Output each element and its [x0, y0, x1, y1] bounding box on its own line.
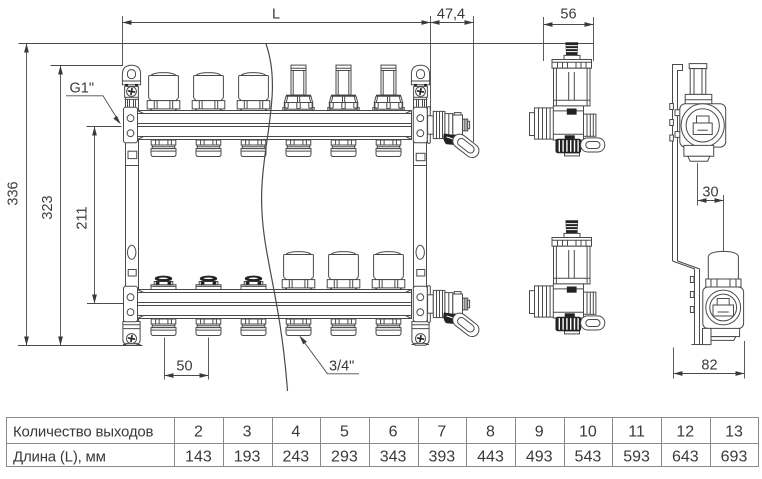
svg-text:393: 393	[428, 449, 455, 466]
svg-text:293: 293	[331, 449, 358, 466]
svg-text:L: L	[272, 7, 280, 23]
svg-text:11: 11	[628, 424, 645, 441]
svg-text:5: 5	[340, 424, 349, 441]
svg-text:12: 12	[676, 424, 694, 441]
svg-text:443: 443	[477, 449, 504, 466]
svg-text:336: 336	[6, 181, 22, 205]
svg-text:693: 693	[721, 449, 748, 466]
svg-text:30: 30	[702, 185, 718, 201]
svg-text:143: 143	[185, 449, 212, 466]
svg-text:10: 10	[579, 424, 597, 441]
svg-text:82: 82	[701, 358, 717, 374]
svg-text:13: 13	[725, 424, 743, 441]
svg-text:343: 343	[380, 449, 407, 466]
svg-text:593: 593	[623, 449, 650, 466]
svg-text:193: 193	[234, 449, 261, 466]
svg-text:2: 2	[194, 424, 203, 441]
svg-text:323: 323	[40, 195, 56, 219]
svg-text:211: 211	[75, 206, 91, 229]
svg-text:50: 50	[176, 359, 192, 375]
svg-text:6: 6	[389, 424, 398, 441]
svg-text:Количество выходов: Количество выходов	[13, 424, 154, 441]
svg-text:493: 493	[526, 449, 553, 466]
svg-text:7: 7	[437, 424, 446, 441]
svg-text:8: 8	[486, 424, 495, 441]
svg-text:G1": G1"	[70, 81, 95, 97]
svg-text:47,4: 47,4	[437, 7, 465, 23]
svg-text:3/4": 3/4"	[329, 359, 354, 375]
svg-text:Длина (L), мм: Длина (L), мм	[13, 449, 106, 466]
svg-text:56: 56	[560, 7, 576, 23]
svg-text:9: 9	[535, 424, 544, 441]
svg-text:243: 243	[282, 449, 309, 466]
svg-text:3: 3	[243, 424, 252, 441]
svg-text:543: 543	[575, 449, 602, 466]
svg-text:4: 4	[291, 424, 300, 441]
svg-text:643: 643	[672, 449, 699, 466]
